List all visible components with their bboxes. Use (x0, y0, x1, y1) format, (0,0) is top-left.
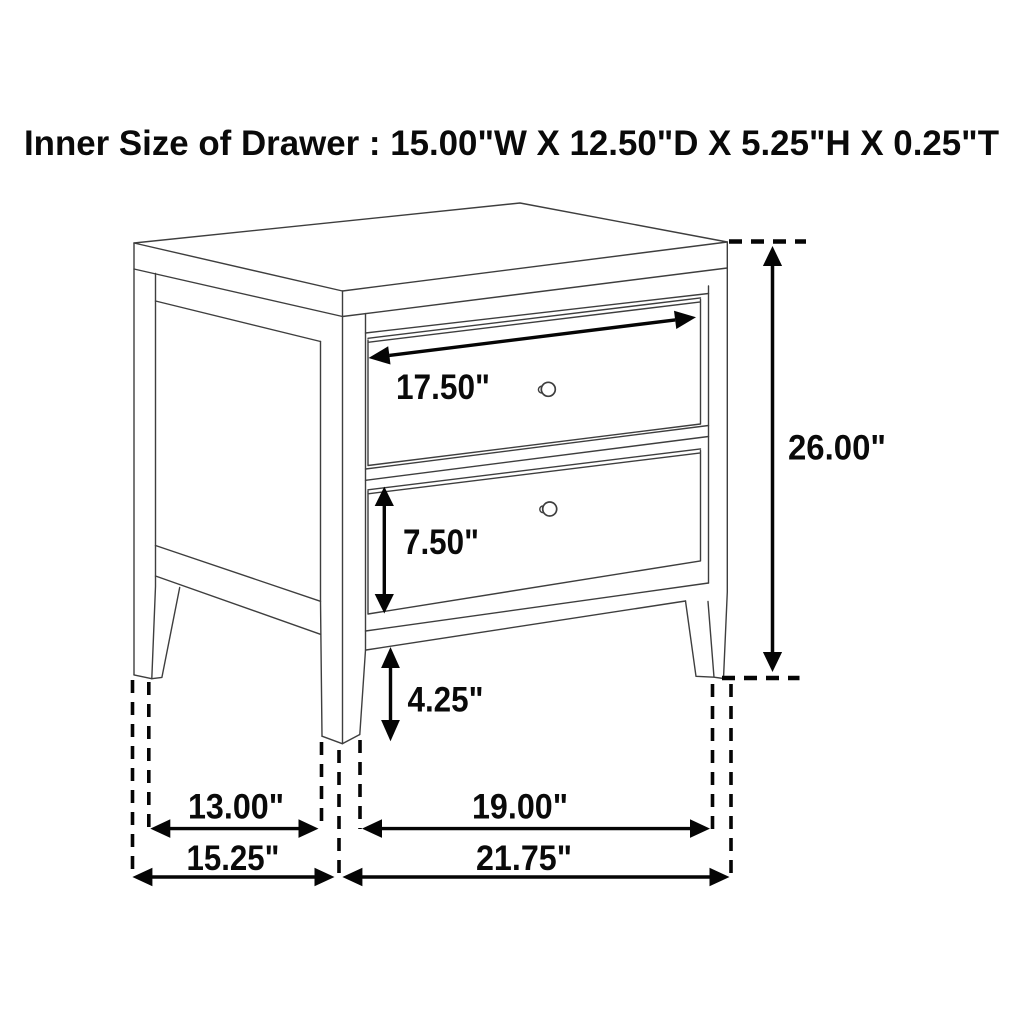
svg-text:Inner Size of Drawer : 15.00"W: Inner Size of Drawer : 15.00"W X 12.50"D… (24, 124, 999, 163)
svg-text:4.25": 4.25" (408, 681, 484, 720)
svg-text:19.00": 19.00" (472, 788, 568, 827)
svg-text:15.25": 15.25" (187, 839, 280, 878)
svg-text:13.00": 13.00" (188, 788, 284, 827)
svg-text:21.75": 21.75" (476, 839, 572, 878)
svg-text:17.50": 17.50" (396, 368, 490, 407)
svg-text:26.00": 26.00" (788, 429, 886, 468)
svg-text:7.50": 7.50" (403, 523, 479, 562)
